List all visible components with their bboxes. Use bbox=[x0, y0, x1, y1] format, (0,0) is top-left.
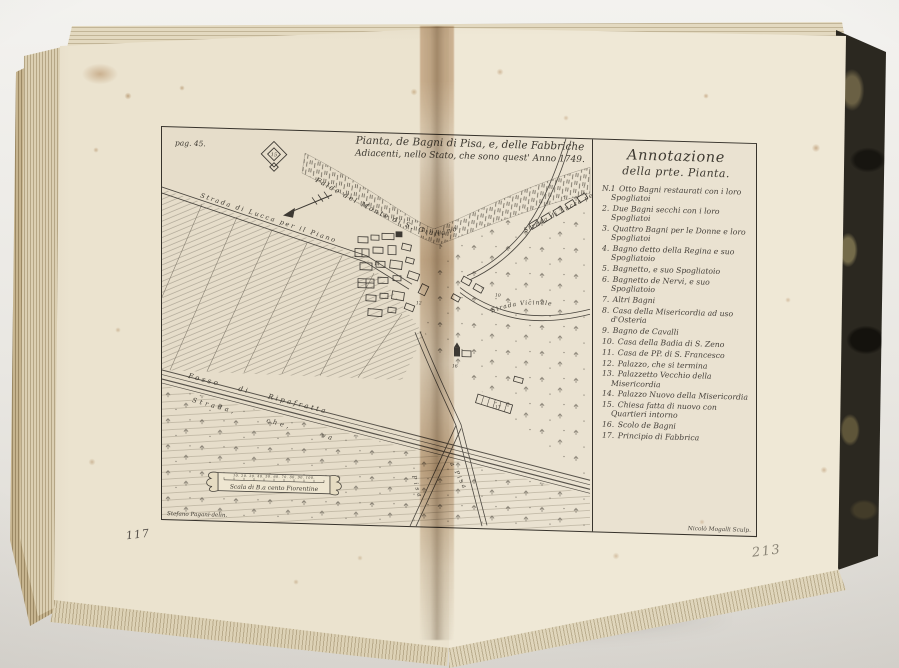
annotation-item: 2. Due Bagni secchi con i loro Spogliato… bbox=[602, 204, 750, 227]
annotation-item: 4. Bagno detto della Regina e suo Spogli… bbox=[602, 244, 750, 267]
map-engraving: Falde del Monte di S. Giuliano pag. 45. … bbox=[162, 127, 592, 531]
annotation-list: N.1 Otto Bagni restaurati con i loro Spo… bbox=[602, 184, 750, 445]
svg-text:17: 17 bbox=[495, 405, 501, 411]
engraver-signature: Nicolò Mogalli Sculp. bbox=[688, 526, 751, 534]
annotation-item: 15. Chiesa fatta di nuovo con Quartieri … bbox=[602, 400, 750, 423]
annotation-item: N.1 Otto Bagni restaurati con i loro Spo… bbox=[602, 184, 750, 207]
svg-text:12: 12 bbox=[416, 300, 422, 306]
annotation-column: Annotazione della prte. Pianta. N.1 Otto… bbox=[592, 139, 756, 536]
engraved-plate: Falde del Monte di S. Giuliano pag. 45. … bbox=[161, 126, 757, 537]
map-area: Falde del Monte di S. Giuliano pag. 45. … bbox=[162, 127, 592, 531]
annotation-item: 6. Bagnetto de Nervi, e suo Spogliatoio bbox=[602, 275, 750, 298]
page-ref: pag. 45. bbox=[175, 138, 206, 148]
svg-text:10: 10 bbox=[495, 293, 501, 299]
svg-text:14: 14 bbox=[374, 261, 380, 267]
annotation-item: 3. Quattro Bagni per le Donne e loro Spo… bbox=[602, 224, 750, 247]
fort-number: 15 bbox=[271, 152, 277, 158]
svg-text:16: 16 bbox=[452, 363, 458, 369]
annotation-item: 8. Casa della Misericordia ad uso d'Oste… bbox=[602, 306, 750, 329]
annotation-item: 13. Palazzetto Vecchio della Misericordi… bbox=[602, 369, 750, 392]
north-arrow-icon bbox=[283, 190, 332, 218]
